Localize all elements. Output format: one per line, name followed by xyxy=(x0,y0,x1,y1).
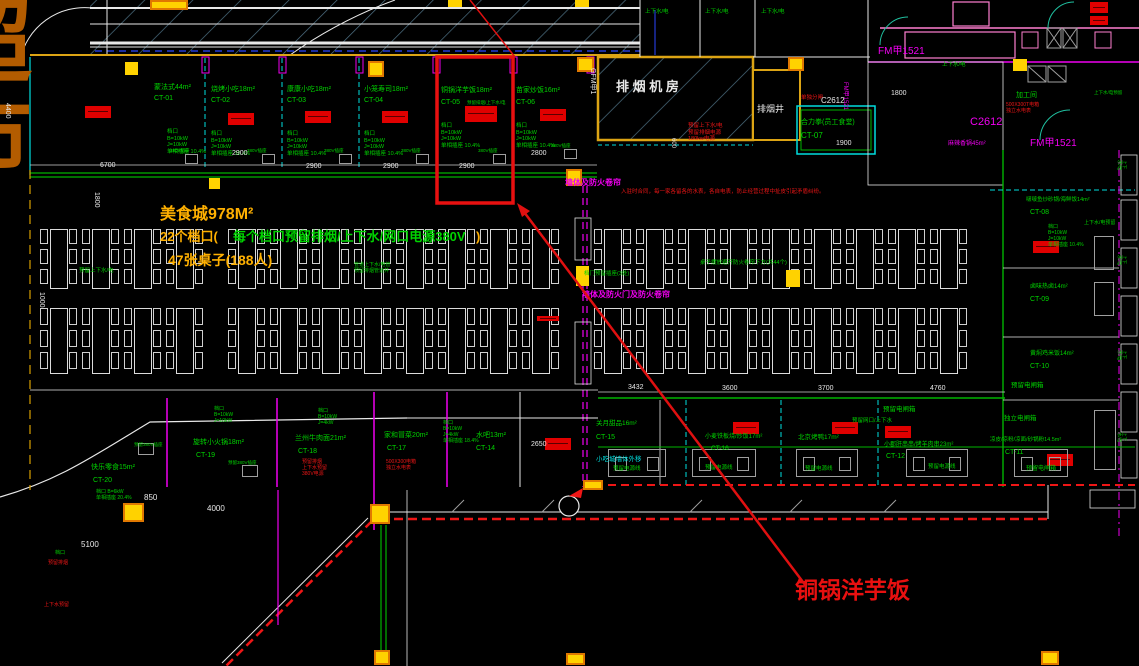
edge-utility-1: 上下水/电 xyxy=(1116,160,1127,172)
dim-2900-d: 2900 xyxy=(459,163,475,171)
stall-ct18-code: CT-18 xyxy=(298,448,317,456)
stall-ct18-name: 兰州牛肉面21m² xyxy=(295,435,346,443)
door-fm1521-c: FM甲1521 xyxy=(1030,138,1077,150)
socket-label-5: 380V插座 xyxy=(478,148,498,153)
stall-ct14-code: CT-14 xyxy=(476,445,495,453)
summary-line2-green: 每个档口预留排烟/上下水/网口电源380V xyxy=(233,229,466,245)
socket-label-1: 380V插座 xyxy=(170,148,190,153)
power-label-4: 预留电源线 xyxy=(928,464,956,471)
canteen-code: CT-07 xyxy=(801,131,823,141)
dim-4760: 4760 xyxy=(930,385,946,393)
dim-3700: 3700 xyxy=(818,385,834,393)
dim-4000: 4000 xyxy=(207,504,225,514)
hotpot-label: 麻辣香锅45m² xyxy=(948,141,986,148)
dim-6700: 6700 xyxy=(100,162,116,170)
breaker-a: 预留电闸箱 xyxy=(1011,382,1044,390)
stall-ct08-code: CT-08 xyxy=(1030,209,1049,217)
stall-ct17-note: 500X300电箱 独立水电表 xyxy=(386,459,416,471)
utility-e: 预留380V插座 xyxy=(134,442,163,447)
stall-ct09-code: CT-09 xyxy=(1030,296,1049,304)
breaker-c: 预留电闸箱 xyxy=(1026,466,1056,473)
stall-ct17-code: CT-17 xyxy=(387,445,406,453)
power-label-3: 预留电源线 xyxy=(805,466,833,473)
stall-ct02-name: 烧烤小吃18m² xyxy=(211,86,255,94)
stall-ct06-code: CT-06 xyxy=(516,99,535,107)
stall-ct19-code: CT-19 xyxy=(196,452,215,460)
misc-c: 档口 xyxy=(55,550,65,556)
stall-ct18-spec: 档口 B=10kW J=4kW xyxy=(318,408,337,426)
stall-ct08-spec: 档口 B=10kW J=10kW 单相插座 10.4% xyxy=(1048,224,1084,248)
stall-duck-name: 北京烤鸭17m² xyxy=(798,434,839,442)
summary-line3: 47张桌子(188人) xyxy=(168,252,272,269)
dim-3432: 3432 xyxy=(628,384,644,392)
dim-3600: 3600 xyxy=(722,385,738,393)
supermarket-char-2: 市 xyxy=(0,84,32,194)
socket-label-3: 380V插座 xyxy=(324,148,344,153)
exhaust-room-label: 排 烟 机 房 xyxy=(616,79,679,95)
dim-2650: 2650 xyxy=(531,441,547,449)
edge-utility-2: 上下水/电 xyxy=(1116,255,1127,267)
dim-1900: 1900 xyxy=(836,140,852,148)
shutter-note-a: 墙体及防火卷帘 xyxy=(565,178,621,188)
stall-ct10-code: CT-10 xyxy=(1030,363,1049,371)
stall-ct17-name: 家和冒菜20m² xyxy=(384,432,428,440)
canteen-note: 单独分闸 xyxy=(801,95,823,102)
misc-b: 上下水预留 xyxy=(44,602,69,608)
dim-2800: 2800 xyxy=(531,150,547,158)
tables-note: 桌子摆放避开防火卷帘下方(共44个) xyxy=(700,260,787,267)
utility-c: 上下水/电预留 xyxy=(1084,220,1115,226)
stall-ct15-name: 关月甜品16m² xyxy=(596,420,637,428)
stall-ct01-code: CT-01 xyxy=(154,95,173,103)
stall-ct04-spec: 档口 B=10kW J=10kW 单相插座 10.4% xyxy=(364,131,403,157)
stall-ct15-code: CT-15 xyxy=(596,434,615,442)
corridor-utility-1: 上下水/电 xyxy=(645,9,669,16)
utility-f: 预留380V插座 xyxy=(228,460,257,465)
summary-line2-suffix: ) xyxy=(476,229,480,245)
door-fm1521-a: FM甲1521 xyxy=(841,82,848,110)
stall-ct14-name: 水吧13m² xyxy=(476,432,506,440)
exhaust-shaft-label: 排烟井 xyxy=(757,104,784,115)
stall-ct16-code: CT-16 xyxy=(711,445,729,453)
socket-label-6: 380V插座 xyxy=(551,143,571,148)
netport-note: 预留网口/上下水 xyxy=(852,418,892,425)
dim-1800-a: 1800 xyxy=(891,90,907,98)
stall-ct09-name: 卤味热卤14m² xyxy=(1030,284,1068,291)
stall-ct19-name: 旋转小火锅18m² xyxy=(193,439,244,447)
contract-note: 入驻时合同，每一家各留各的水表，各自电表，防止经营过程中扯皮引起矛盾纠纷。 xyxy=(621,189,825,196)
dim-1800-b: 1800 xyxy=(92,192,100,208)
corridor-utility-3: 上下水/电 xyxy=(761,9,785,16)
utility-d: 预留上下水/电 xyxy=(79,268,114,275)
stall-ct04-code: CT-04 xyxy=(364,97,383,105)
stall-ct08-name: 啵啵鱼炒砂锅/海鲜饭14m² xyxy=(1026,197,1090,204)
stall-ct03-spec: 档口 B=10kW J=10kW 单相插座 10.4% xyxy=(287,131,326,157)
callout-label: 铜锅洋芋饭 xyxy=(795,577,910,605)
stall-ct19-spec: 档口 B=10kW J=10kW xyxy=(214,406,233,424)
socket-label-4: 380V插座 xyxy=(401,148,421,153)
stall-ct05-name: 铜锅洋芋饭18m² xyxy=(441,87,492,95)
exhaust-notes: 预留上下水/电 预留排烟电源 180kw电源 xyxy=(688,123,723,143)
door-fm1521-b: FM甲1521 xyxy=(878,46,925,58)
stall-ct10-name: 黄焖鸡米饭14m² xyxy=(1030,351,1074,358)
power-label-1: 预留电源线 xyxy=(613,466,641,473)
stall-ct12-name: 小郡肝串串/烤羊肉串23m² xyxy=(884,442,953,449)
stall-ct06-name: 苗家炒饭16m² xyxy=(516,87,560,95)
stall-ct05-spec: 档口 B=10kW J=10kW 单相插座 10.4% xyxy=(441,123,480,149)
stall-ct03-code: CT-03 xyxy=(287,97,306,105)
stall-ct18-note: 预留排烟 上下水预留 380V电源 xyxy=(302,459,327,477)
breaker-b: 独立电闸箱 xyxy=(1004,415,1037,423)
edge-utility-4: 上下水/电 xyxy=(1116,432,1127,444)
summary-line1: 美食城978M² xyxy=(160,205,253,224)
utility-a: 上下水/电 xyxy=(942,62,966,69)
shutter-note-b: 墙体及防火门及防火卷帘 xyxy=(582,290,670,300)
stall-ct11-name: 凉皮/凉粉/凉面/砂锅粉14.5m² xyxy=(990,437,1061,444)
canteen-name: 合力拳(员工食堂) xyxy=(801,119,855,127)
door-code-gfm: GFM甲1 xyxy=(588,68,596,94)
breaker-d: 预留电闸箱 xyxy=(883,406,916,414)
power-label-2: 预留电源线 xyxy=(705,465,733,472)
stall-ct20-name: 快乐零食15m² xyxy=(91,464,135,472)
dim-600: 600 xyxy=(669,138,676,148)
stall-ct20-code: CT-20 xyxy=(93,477,112,485)
pipes-note: 管道上下水/电管 预留排烟管道井 xyxy=(354,262,390,274)
prep-room-note: 500X300T电箱 独立水电表 xyxy=(1006,102,1039,114)
wall-note: 小吃城墙体外移 xyxy=(596,456,642,464)
edge-utility-3: 上下水/电 xyxy=(1116,350,1127,362)
dim-1000: 1000 xyxy=(37,292,45,308)
dim-5100: 5100 xyxy=(81,540,99,550)
dim-850: 850 xyxy=(144,493,157,503)
stall-ct06-spec: 档口 B=10kW J=10kW 单相插座 10.4% xyxy=(516,123,555,149)
corridor-utility-2: 上下水/电 xyxy=(705,9,729,16)
dim-2900-c: 2900 xyxy=(383,163,399,171)
utility-b: 上下水/电预留 xyxy=(1094,90,1122,95)
window-c2612-b: C2612 xyxy=(970,116,1002,129)
stall-ct14-spec: 档口 B=10kW J=4kW 单相插座 18.4% xyxy=(443,420,479,444)
stall-ct03-name: 康康小吃18m² xyxy=(287,86,331,94)
misc-a: 预留排烟 xyxy=(48,560,68,566)
stall-ct12-code: CT-12 xyxy=(886,453,905,461)
dim-4400: 4400 xyxy=(3,103,11,119)
dim-2900-b: 2900 xyxy=(306,163,322,171)
stall-ct11-code: CT-11 xyxy=(1005,449,1024,457)
stall-ct05-code: CT-05 xyxy=(441,99,460,107)
stall-ct16-name: 小麦铁板烧/炒饭17m² xyxy=(705,434,762,441)
stall-ct20-spec: 档口 B=6kW 单相插座 20.4% xyxy=(96,489,132,501)
annotations: 超市美食城978M²22个档口(每个档口预留排烟/上下水/网口电源380V)47… xyxy=(0,0,1139,666)
summary-line2-prefix: 22个档口( xyxy=(160,229,218,245)
dim-2900-a: 2900 xyxy=(232,150,248,158)
stall-ct04-name: 小笼寿司18m² xyxy=(364,86,408,94)
stall-ct01-name: 蒙法式44m² xyxy=(154,84,191,92)
socket-label-2: 380V插座 xyxy=(247,148,267,153)
stall-ct02-code: CT-02 xyxy=(211,97,230,105)
prep-room-label: 加工间 xyxy=(1016,92,1037,100)
sockets-note: 档门预留插座(3处) xyxy=(584,271,629,278)
stall-ct05-note: 预留排烟/上下水/电 xyxy=(467,100,506,105)
floorplan-canvas[interactable]: 超市美食城978M²22个档口(每个档口预留排烟/上下水/网口电源380V)47… xyxy=(0,0,1139,666)
